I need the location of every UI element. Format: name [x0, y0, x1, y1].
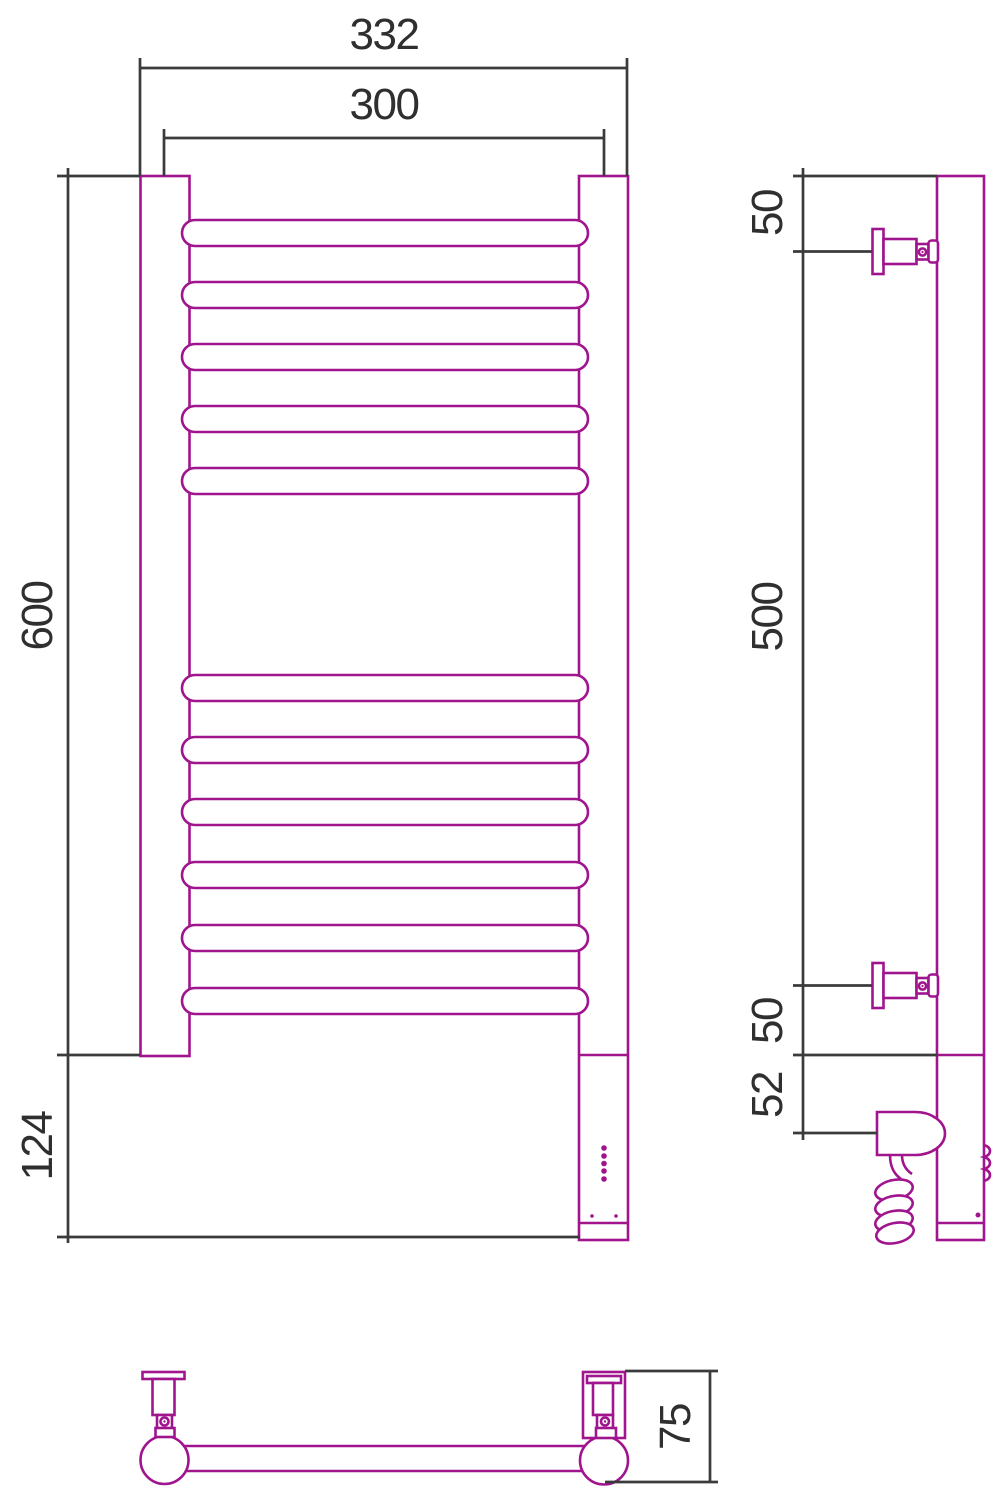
heater-unit — [873, 1112, 945, 1247]
dim-label-lower-section: 124 — [13, 1111, 62, 1181]
dim-label-axis-width: 300 — [350, 80, 419, 129]
screw-dot — [590, 1214, 594, 1218]
cord-neck — [902, 1155, 912, 1174]
wall-bracket-bottom — [873, 963, 939, 1008]
rung — [182, 468, 588, 494]
dim-height: 600 124 — [13, 168, 580, 1243]
collector-profile — [937, 176, 984, 1240]
bottom-view: 75 — [141, 1371, 719, 1485]
dim-label-depth: 75 — [651, 1404, 700, 1450]
rung — [182, 344, 588, 370]
wall-bracket-plan-left — [143, 1372, 185, 1437]
dim-label-heater-offset: 52 — [743, 1072, 792, 1118]
right-collector — [579, 176, 628, 1240]
front-view: 332 300 600 124 — [13, 10, 628, 1243]
rung — [182, 862, 588, 888]
led-dot — [601, 1153, 607, 1159]
rung — [182, 799, 588, 825]
rung — [182, 988, 588, 1014]
dim-label-overall-width: 332 — [350, 10, 419, 59]
led-dot — [601, 1145, 607, 1151]
rung — [182, 925, 588, 951]
screw-dot — [976, 1213, 981, 1218]
left-collector — [141, 176, 190, 1056]
rung — [182, 406, 588, 432]
led-dot — [601, 1168, 607, 1174]
rung-group-bottom — [182, 675, 588, 1014]
rung — [182, 675, 588, 701]
side-view: 50 500 50 52 — [743, 168, 990, 1247]
dim-label-bottom-bracket: 50 — [743, 998, 792, 1044]
screw-dot — [614, 1214, 618, 1218]
rung-profile — [175, 1446, 595, 1471]
dim-label-bracket-spacing: 500 — [743, 583, 792, 652]
rung — [182, 737, 588, 763]
rung — [182, 282, 588, 308]
towel-rail-drawing: 332 300 600 124 — [0, 0, 1004, 1500]
rung-group-top — [182, 220, 588, 494]
left-collector-section — [141, 1436, 189, 1484]
led-dot — [601, 1161, 607, 1167]
rung — [182, 220, 588, 246]
dim-label-height: 600 — [13, 582, 62, 651]
led-dot — [601, 1176, 607, 1182]
drawing-canvas: 332 300 600 124 — [0, 0, 1004, 1500]
dim-label-top-bracket: 50 — [743, 190, 792, 236]
right-collector-section — [580, 1437, 628, 1485]
heater-housing — [877, 1112, 945, 1155]
wall-bracket-top — [873, 229, 939, 274]
coiled-cord — [873, 1176, 915, 1246]
cord-neck — [890, 1155, 901, 1179]
dim-axis-width: 300 — [164, 80, 604, 176]
